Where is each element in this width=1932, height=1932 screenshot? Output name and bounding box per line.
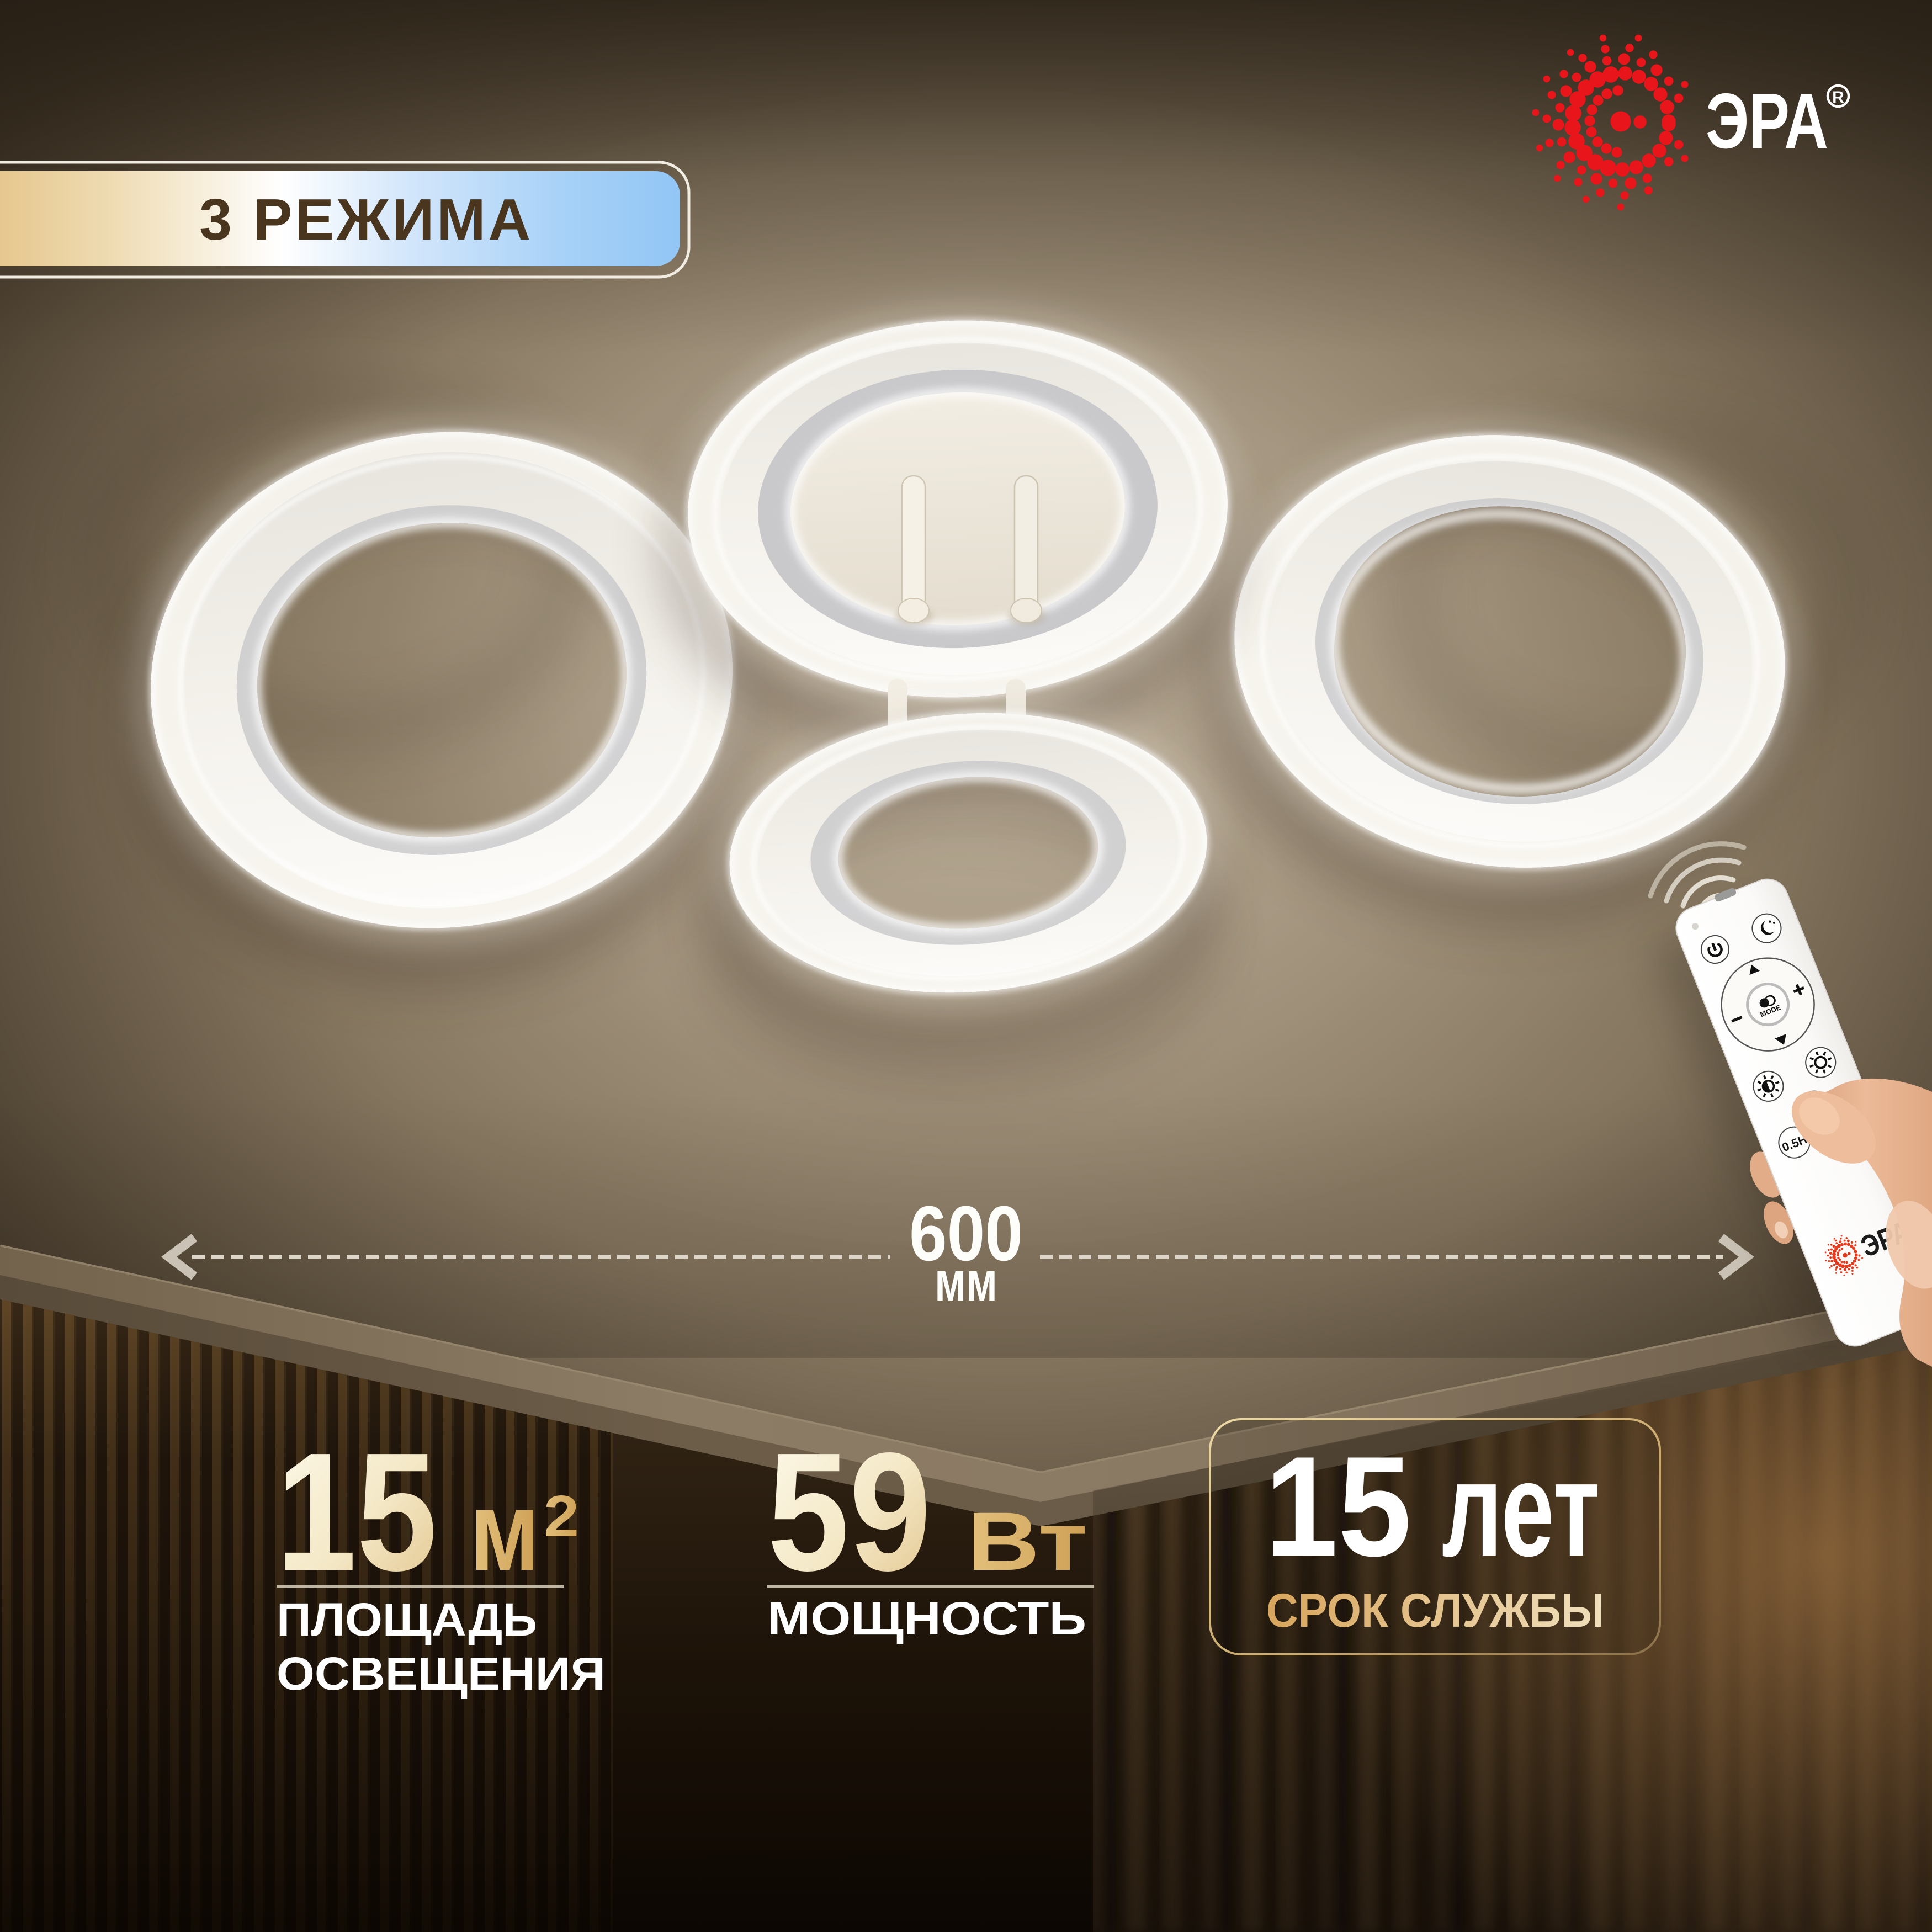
svg-text:15: 15 [276,1418,437,1606]
svg-text:СРОК СЛУЖБЫ: СРОК СЛУЖБЫ [1266,1584,1604,1637]
svg-text:3 РЕЖИМА: 3 РЕЖИМА [199,187,530,252]
svg-text:мм: мм [935,1251,997,1313]
svg-text:15: 15 [1265,1426,1411,1586]
svg-text:59: 59 [767,1418,931,1606]
svg-text:2: 2 [544,1484,579,1549]
svg-text:R: R [1832,88,1844,107]
svg-text:ЭРА: ЭРА [1706,77,1828,165]
svg-text:м: м [470,1468,539,1594]
svg-text:ПЛОЩАДЬ: ПЛОЩАДЬ [277,1594,537,1646]
svg-text:ОСВЕЩЕНИЯ: ОСВЕЩЕНИЯ [277,1648,606,1700]
svg-text:лет: лет [1442,1434,1600,1584]
svg-text:МОЩНОСТЬ: МОЩНОСТЬ [767,1593,1086,1644]
svg-text:Вт: Вт [967,1495,1087,1588]
